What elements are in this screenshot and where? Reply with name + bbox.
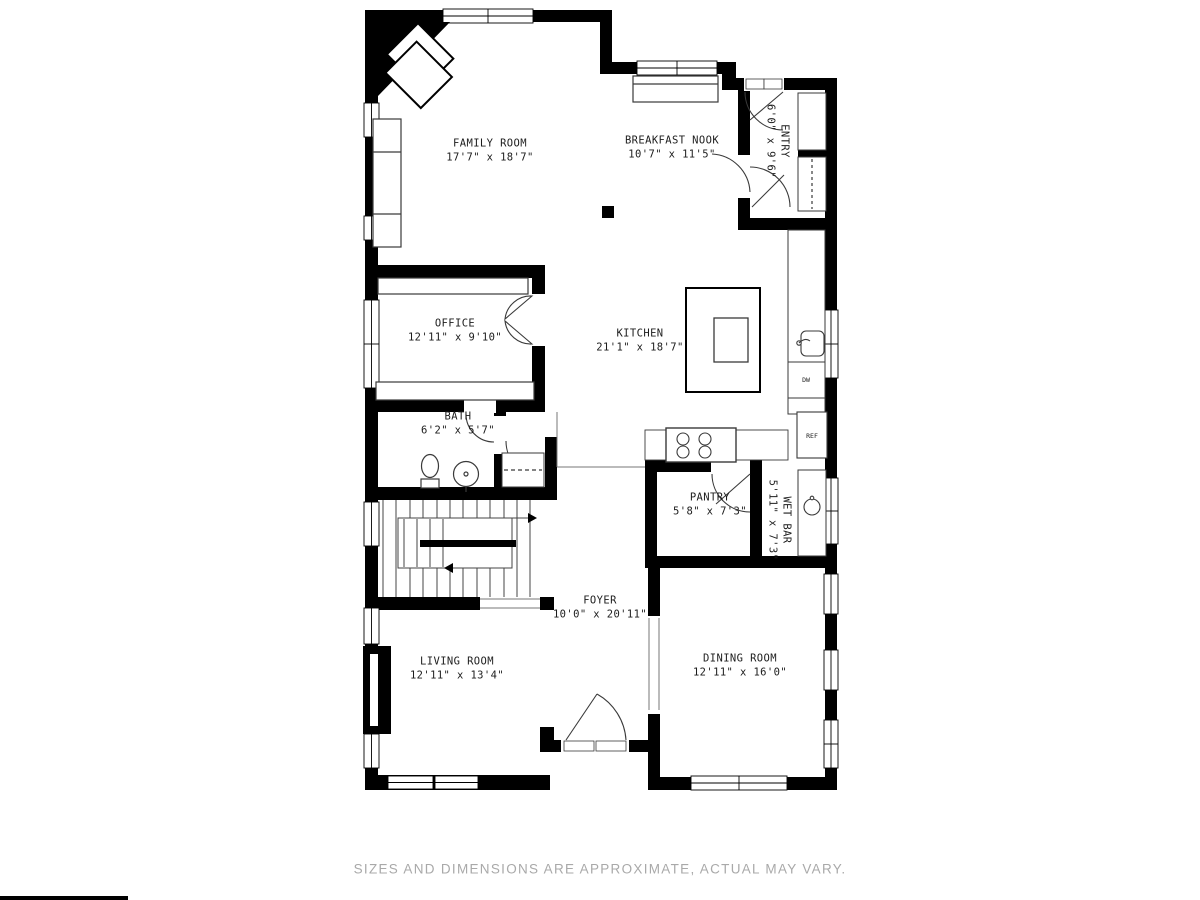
dining-bottom-window <box>691 776 787 790</box>
kitchen-column <box>602 206 614 218</box>
family-corner-fireplace <box>377 22 462 108</box>
living-left-window-2 <box>364 734 379 768</box>
bar-sink <box>804 499 820 515</box>
page-edge-mark <box>0 896 128 900</box>
floor-plan-page: FAMILY ROOM 17'7" x 18'7" BREAKFAST NOOK… <box>0 0 1200 900</box>
room-label-bath: BATH 6'2" x 5'7" <box>421 410 495 437</box>
room-label-entry: ENTRY 6'0" x 9'6" <box>763 104 790 178</box>
disclaimer-text: SIZES AND DIMENSIONS ARE APPROXIMATE, AC… <box>354 862 847 877</box>
pantry-left-wall <box>645 460 657 568</box>
kitchen-sink <box>797 331 824 356</box>
stairs-top-wall <box>365 487 557 500</box>
floor-plan-drawing <box>0 0 1200 900</box>
island <box>686 288 760 392</box>
room-name: OFFICE <box>435 317 475 331</box>
room-dims: 17'7" x 18'7" <box>446 151 533 165</box>
right-counter <box>788 230 825 414</box>
entry-bottom-wall <box>738 218 837 230</box>
living-foyer-step <box>540 727 554 752</box>
family-top-window <box>443 9 533 23</box>
room-name: BREAKFAST NOOK <box>625 134 719 148</box>
kitchen-right-window <box>824 310 838 378</box>
room-label-family-room: FAMILY ROOM 17'7" x 18'7" <box>446 137 533 164</box>
living-top-wall <box>365 597 480 610</box>
dining-left-wall-lower <box>648 712 660 790</box>
living-bottom-window-2 <box>435 776 478 789</box>
room-label-living-room: LIVING ROOM 12'11" x 13'4" <box>410 655 504 682</box>
room-name: ENTRY <box>777 124 791 158</box>
dining-right-window-1 <box>824 574 838 614</box>
office-shelf <box>378 278 528 294</box>
toilet <box>421 455 439 489</box>
room-dims: 10'0" x 20'11" <box>553 608 647 622</box>
room-name: BATH <box>445 410 472 424</box>
room-dims: 5'8" x 7'3" <box>673 505 747 519</box>
doors <box>466 79 790 751</box>
room-label-breakfast-nook: BREAKFAST NOOK 10'7" x 11'5" <box>625 134 719 161</box>
room-name: WET BAR <box>779 496 793 543</box>
room-name: FOYER <box>583 594 617 608</box>
room-dims: 12'11" x 9'10" <box>408 331 502 345</box>
office-top-wall <box>365 265 545 278</box>
dining-right-window-2 <box>824 650 838 690</box>
room-dims: 6'2" x 5'7" <box>421 424 495 438</box>
entry-left-wall-lower <box>738 198 750 218</box>
dishwasher-label: DW <box>802 377 810 384</box>
office-left-window <box>364 300 379 388</box>
room-name: KITCHEN <box>616 327 663 341</box>
room-dims: 12'11" x 13'4" <box>410 669 504 683</box>
nook-top-window <box>637 61 717 75</box>
entry-closet-stub <box>798 150 827 157</box>
dining-left-wall-upper <box>648 556 660 618</box>
pantry-right-wall <box>750 460 762 568</box>
bath-wall-door-gap <box>493 416 507 454</box>
room-label-dining-room: DINING ROOM 12'11" x 16'0" <box>693 652 787 679</box>
room-dims: 6'0" x 9'6" <box>763 104 777 178</box>
living-bottom-window-1 <box>388 776 433 789</box>
room-dims: 12'11" x 16'0" <box>693 666 787 680</box>
living-top-wall-stub <box>540 597 554 610</box>
office-french-doors <box>505 296 532 344</box>
closet-right-wall <box>545 437 557 492</box>
room-label-pantry: PANTRY 5'8" x 7'3" <box>673 491 747 518</box>
family-sofa <box>373 119 401 247</box>
room-name: FAMILY ROOM <box>453 137 527 151</box>
staircase <box>383 500 537 597</box>
room-label-wet-bar: WET BAR 5'11" x 7'3" <box>765 480 792 561</box>
nook-bench <box>633 76 718 102</box>
wet-bar-counter <box>798 470 826 556</box>
range-cooktop <box>666 428 736 462</box>
room-name: LIVING ROOM <box>420 655 494 669</box>
stairs-left-window <box>364 502 379 546</box>
office-door-gap <box>531 294 546 346</box>
pantry-bar-bottom-wall <box>645 556 837 568</box>
room-label-kitchen: KITCHEN 21'1" x 18'7" <box>596 327 683 354</box>
stair-rail <box>420 540 516 547</box>
room-label-foyer: FOYER 10'0" x 20'11" <box>553 594 647 621</box>
room-dims: 10'7" x 11'5" <box>628 148 715 162</box>
entry-left-wall-upper <box>738 90 750 155</box>
refrigerator-label: REF <box>806 433 818 440</box>
foyer-closet <box>502 453 544 487</box>
room-dims: 5'11" x 7'3" <box>765 480 779 561</box>
room-name: PANTRY <box>690 491 730 505</box>
room-label-office: OFFICE 12'11" x 9'10" <box>408 317 502 344</box>
room-dims: 21'1" x 18'7" <box>596 341 683 355</box>
office-credenza <box>376 382 534 400</box>
living-left-window-1 <box>364 608 379 644</box>
room-name: DINING ROOM <box>703 652 777 666</box>
living-fireplace <box>363 646 391 734</box>
dining-right-window-3 <box>824 720 838 768</box>
